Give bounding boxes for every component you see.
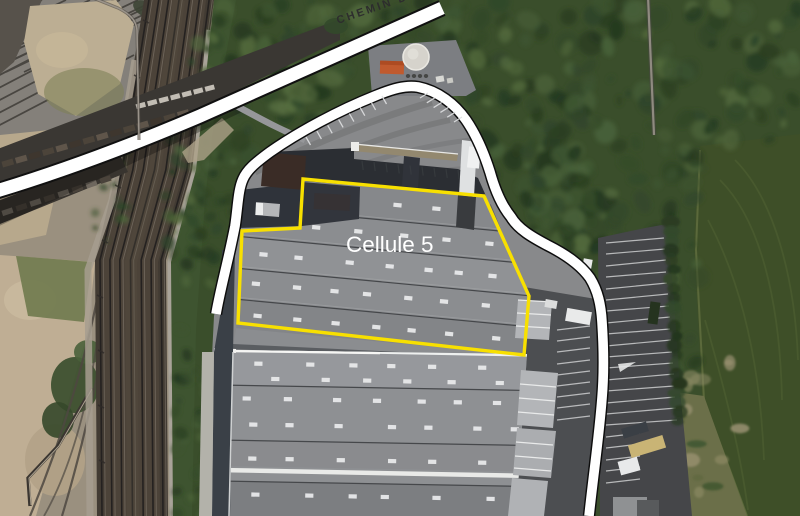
svg-text:Cellule 5: Cellule 5 — [346, 232, 434, 257]
